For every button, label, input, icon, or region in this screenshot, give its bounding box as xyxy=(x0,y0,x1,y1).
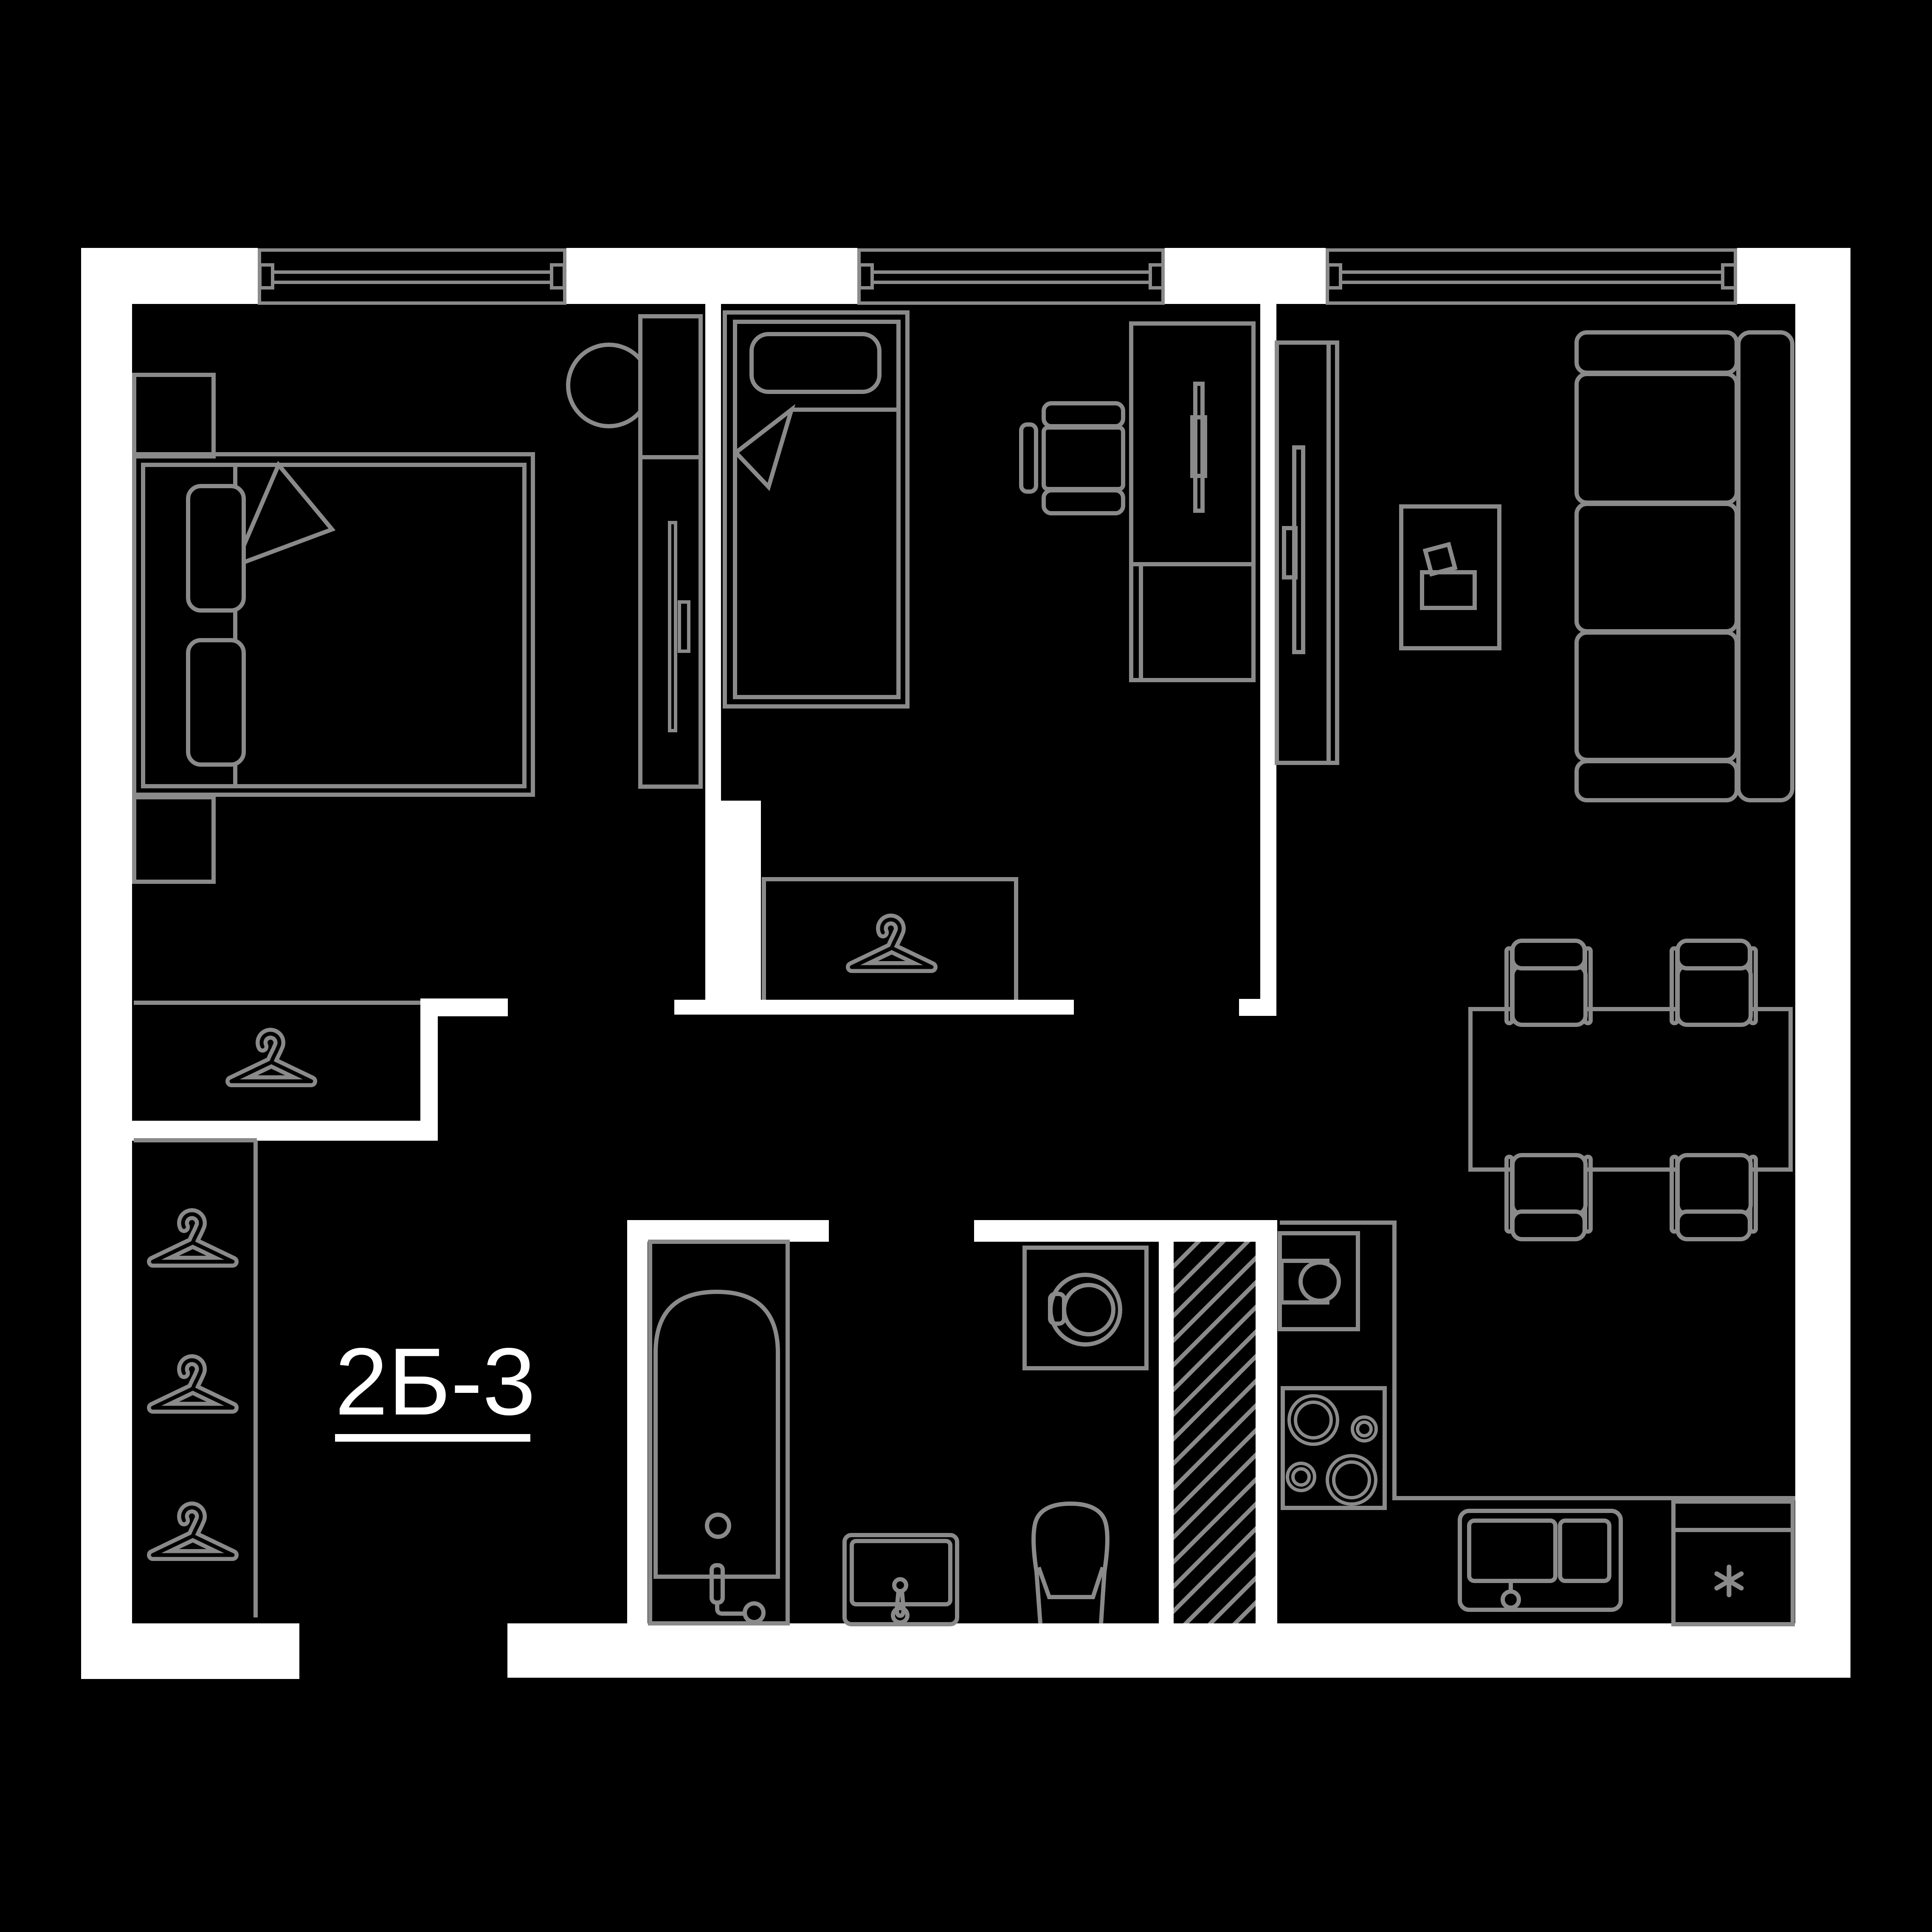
svg-text:2Б-3: 2Б-3 xyxy=(335,1328,536,1435)
